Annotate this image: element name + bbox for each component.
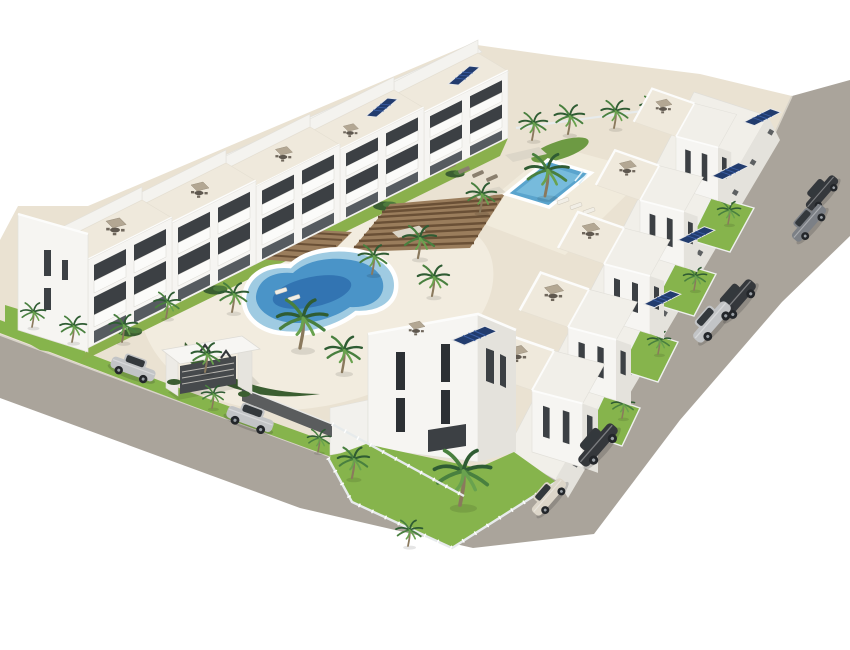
architectural-render — [0, 0, 850, 650]
render-canvas — [0, 0, 850, 650]
